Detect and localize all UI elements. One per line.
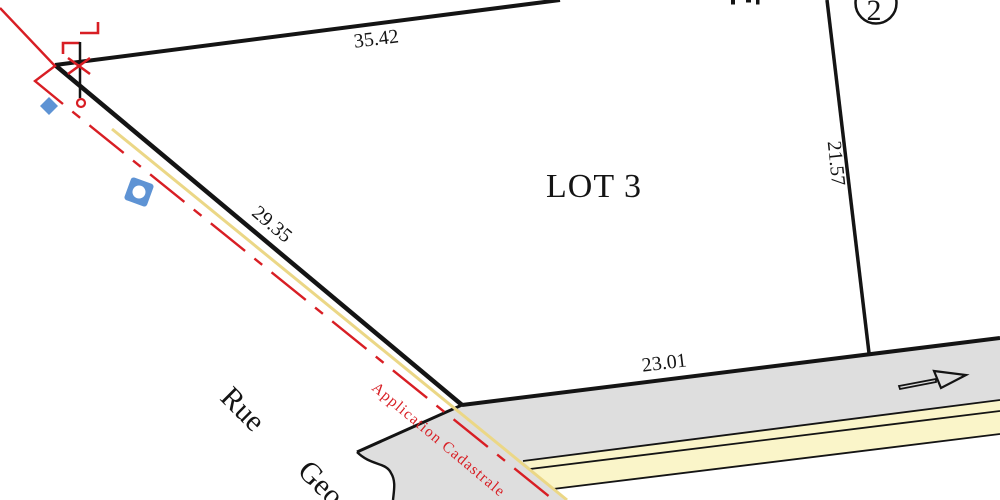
clipped-dimension-text — [731, 0, 760, 5]
parcel-number: 2 — [867, 0, 882, 27]
dimension-top: 35.42 — [353, 25, 400, 52]
dimension-bottom: 23.01 — [641, 349, 688, 376]
blue-nut-symbol-icon — [124, 177, 155, 208]
dimension-right: 21.57 — [823, 140, 850, 187]
cadastral-plan: 2 LOT 3 35.42 29.35 21.57 23.01 Rue Geo … — [0, 0, 1000, 500]
lot-boundaries — [55, 0, 1000, 405]
street-name-word1: Rue — [214, 381, 272, 439]
boundary-top — [55, 0, 560, 65]
boundary-left-diagonal — [55, 65, 462, 405]
street-name-word2: Geo — [291, 454, 350, 500]
dimension-left: 29.35 — [248, 202, 297, 248]
blue-diamond-symbol-icon — [40, 97, 58, 115]
utility-yellow-line — [112, 129, 567, 500]
adjacent-parcel-badge: 2 — [856, 0, 897, 27]
cadastral-line-solid — [0, 8, 63, 104]
plan-drawing: 2 LOT 3 35.42 29.35 21.57 23.01 Rue Geo … — [0, 0, 1000, 500]
survey-point-circle-icon — [77, 99, 85, 107]
lot-label: LOT 3 — [546, 168, 642, 205]
